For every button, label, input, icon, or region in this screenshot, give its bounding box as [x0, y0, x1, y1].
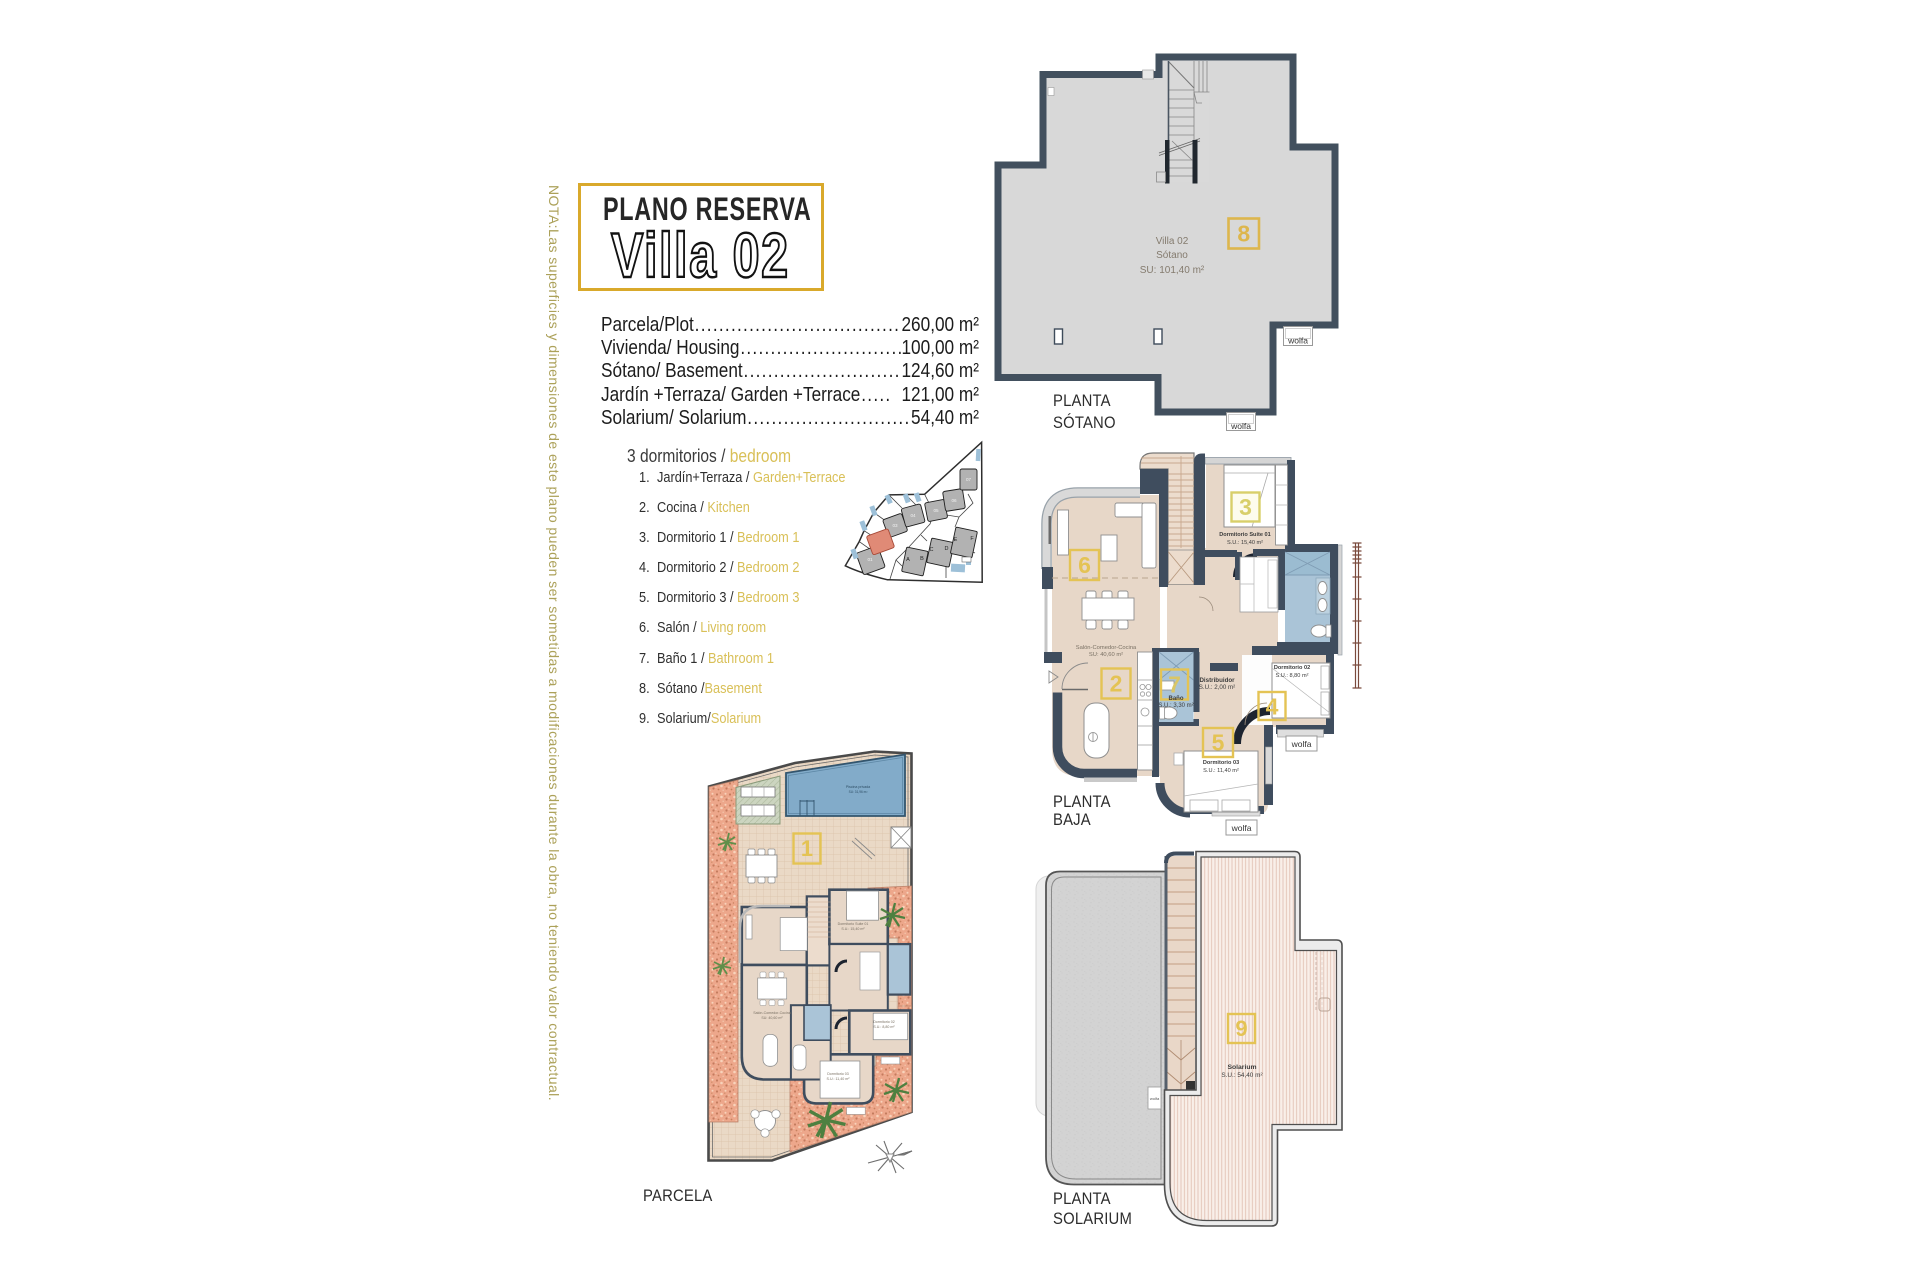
svg-text:D: D [945, 546, 949, 552]
svg-text:8: 8 [1237, 221, 1250, 247]
svg-text:A: A [906, 557, 910, 563]
svg-text:07: 07 [966, 477, 972, 482]
svg-text:S.U.: 2,00 m²: S.U.: 2,00 m² [1199, 684, 1235, 691]
svg-text:Piscina privada: Piscina privada [846, 785, 870, 789]
svg-text:Solarium: Solarium [1227, 1064, 1256, 1071]
svg-text:SU: 40,60 m²: SU: 40,60 m² [1089, 652, 1123, 658]
svg-text:05: 05 [933, 508, 939, 513]
svg-text:Villa 02: Villa 02 [1156, 236, 1189, 247]
svg-text:wolfa: wolfa [1230, 421, 1251, 431]
svg-text:S.U.: 11,40 m²: S.U.: 11,40 m² [827, 1077, 851, 1081]
svg-text:04: 04 [910, 513, 916, 518]
svg-text:S.U.: 11,40 m²: S.U.: 11,40 m² [1203, 768, 1239, 774]
svg-text:wolfa: wolfa [1287, 336, 1308, 346]
svg-text:S.U.: 15,40 m²: S.U.: 15,40 m² [841, 927, 865, 931]
svg-text:Dormitorio Suite 01: Dormitorio Suite 01 [1219, 532, 1271, 538]
svg-text:SU: 101,40 m²: SU: 101,40 m² [1140, 265, 1205, 276]
svg-text:Distribuidor: Distribuidor [1199, 677, 1235, 684]
svg-text:5: 5 [1212, 730, 1225, 756]
svg-text:Sótano: Sótano [1156, 250, 1188, 261]
svg-text:Dormitorio 03: Dormitorio 03 [827, 1072, 849, 1076]
svg-text:06: 06 [951, 498, 957, 503]
svg-text:wolfa: wolfa [1291, 739, 1312, 749]
svg-text:S.U.: 15,40 m²: S.U.: 15,40 m² [1227, 540, 1263, 546]
svg-text:S.U.: 8,80 m²: S.U.: 8,80 m² [1276, 673, 1309, 679]
svg-text:01: 01 [867, 557, 873, 562]
svg-text:wolfa: wolfa [1231, 823, 1252, 833]
svg-text:03: 03 [892, 523, 898, 528]
svg-text:SU: 31,96 m²: SU: 31,96 m² [849, 790, 868, 794]
svg-text:S.U.: 8,80 m²: S.U.: 8,80 m² [873, 1025, 895, 1029]
svg-text:2: 2 [1110, 671, 1123, 697]
svg-text:1: 1 [801, 836, 813, 861]
svg-text:7: 7 [1168, 672, 1181, 698]
svg-text:Dormitorio 02: Dormitorio 02 [1274, 665, 1310, 671]
svg-text:9: 9 [1235, 1016, 1247, 1041]
svg-text:wolfa: wolfa [1150, 1096, 1160, 1101]
svg-text:E: E [954, 537, 958, 543]
svg-text:6: 6 [1078, 552, 1091, 578]
svg-text:Salón-Comedor-Cocina: Salón-Comedor-Cocina [1076, 645, 1137, 651]
svg-text:SU: 40,60 m²: SU: 40,60 m² [761, 1016, 783, 1020]
svg-text:Salón-Comedor-Cocina: Salón-Comedor-Cocina [753, 1011, 791, 1015]
svg-text:Baño: Baño [1169, 696, 1184, 702]
svg-text:3: 3 [1239, 494, 1252, 520]
svg-text:Dormitorio Suite 01: Dormitorio Suite 01 [838, 922, 869, 926]
svg-text:Dormitorio 03: Dormitorio 03 [1203, 760, 1239, 766]
svg-text:C: C [930, 547, 934, 553]
svg-text:S.U.: 54,40 m²: S.U.: 54,40 m² [1221, 1072, 1262, 1079]
svg-text:4: 4 [1266, 694, 1279, 720]
svg-text:S.U.: 3,30 m²: S.U.: 3,30 m² [1158, 703, 1193, 709]
svg-text:Dormitorio 02: Dormitorio 02 [873, 1020, 895, 1024]
svg-text:B: B [920, 556, 924, 562]
